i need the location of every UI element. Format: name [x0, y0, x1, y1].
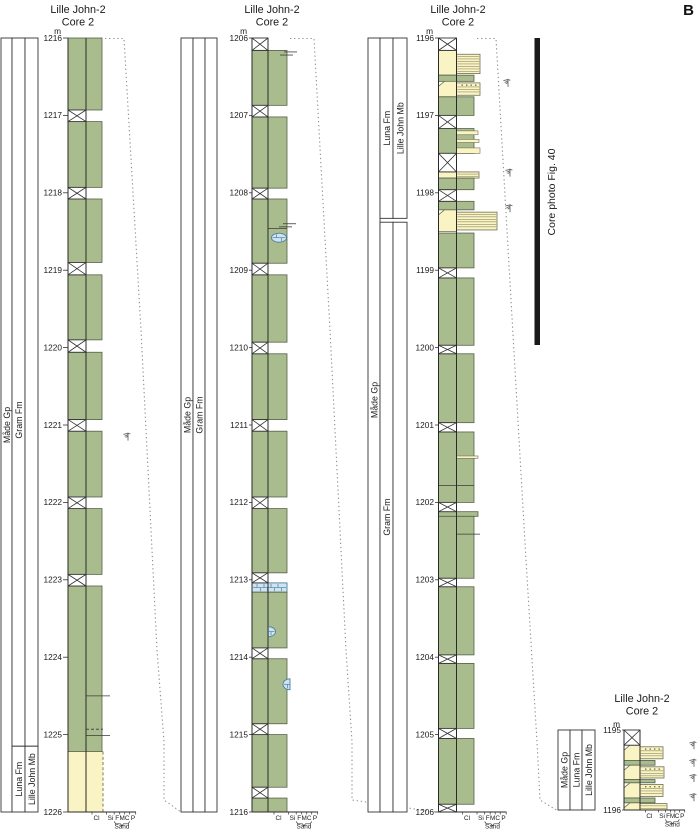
depth-tick-label: 1202	[416, 497, 435, 507]
column-title: Lille John-2	[430, 4, 485, 16]
formation-label: Luna Fm	[382, 111, 392, 146]
core-photo-label: Core photo Fig. 40	[546, 148, 558, 235]
mudstone-unit	[68, 431, 102, 497]
sand-dot	[654, 768, 655, 769]
grainsize-label: Si	[108, 815, 114, 822]
laminated-sand-block	[457, 83, 481, 95]
trace-fossil-icon	[689, 774, 696, 782]
mudstone-unit	[252, 659, 287, 724]
grainsize-label: C	[125, 815, 130, 822]
trace-fossil-icon	[689, 793, 696, 801]
sand-stringer	[457, 148, 481, 153]
depth-tick-label: 1203	[416, 575, 435, 585]
sand-left-block	[439, 172, 457, 178]
depth-tick-label: 1209	[230, 265, 249, 275]
depth-tick-label: 1217	[44, 110, 63, 120]
mudstone-unit	[68, 122, 102, 188]
mudstone-unit	[68, 352, 102, 419]
mudstone-unit	[252, 735, 287, 788]
sand-left-block	[624, 765, 640, 779]
sand-left-block	[439, 81, 457, 96]
sand-dot	[645, 786, 646, 787]
depth-tick-label: 1195	[603, 725, 621, 735]
formation-box	[205, 38, 217, 812]
formation-label: Lille John Mb	[396, 102, 406, 154]
sand-bracket-label: Sand	[296, 824, 311, 831]
depth-tick-label: 1225	[44, 729, 63, 739]
trace-fossil-icon	[123, 433, 130, 441]
formation-label: Luna Fm	[14, 762, 24, 797]
sand-left-block	[624, 783, 640, 798]
sand-dot	[645, 768, 646, 769]
depth-tick-label: 1208	[230, 188, 249, 198]
sand-left-block	[624, 803, 640, 810]
mudstone-unit	[252, 50, 287, 105]
depth-tick-label: 1212	[230, 497, 249, 507]
depth-tick-label: 1205	[416, 729, 435, 739]
grainsize-label: C	[675, 813, 680, 820]
trace-fossil-icon	[505, 204, 512, 212]
grainsize-label: Si	[290, 815, 296, 822]
column-title: Core 2	[62, 17, 94, 29]
grainsize-label: C	[495, 815, 500, 822]
formation-box	[12, 38, 25, 746]
depth-tick-label: 1226	[44, 807, 63, 817]
trace-fossil-icon	[689, 759, 696, 767]
formation-label: Måde Gp	[183, 397, 193, 433]
grainsize-label: Cl	[93, 815, 99, 822]
sand-bracket-label: Sand	[485, 824, 500, 831]
grainsize-label: C	[307, 815, 312, 822]
grainsize-label: Cl	[464, 815, 470, 822]
depth-tick-label: 1216	[44, 33, 63, 43]
laminated-sand-block	[640, 804, 667, 810]
depth-tick-label: 1206	[230, 33, 249, 43]
mudstone-unit	[252, 592, 287, 648]
depth-tick-label: 1211	[230, 420, 248, 430]
trace-fossil-icon	[689, 741, 696, 749]
column-title: Core 2	[442, 17, 474, 29]
formation-label: Måde Gp	[560, 752, 570, 788]
formation-label: Måde Gp	[370, 382, 380, 418]
sand-dot	[462, 84, 463, 85]
laminated-sand-block	[457, 212, 498, 230]
sand-bracket-label: Sand	[665, 822, 680, 829]
mudstone-unit	[252, 117, 287, 188]
log-column-core2-1216-1226: Måde GpGram FmLuna FmLille John MbLille …	[1, 4, 136, 831]
mudstone-unit	[252, 354, 287, 420]
depth-tick-label: 1222	[44, 497, 63, 507]
column-title: Lille John-2	[614, 693, 669, 705]
sand-left-block	[439, 50, 457, 75]
grainsize-label: Cl	[275, 815, 281, 822]
depth-tick-label: 1215	[230, 729, 249, 739]
sand-dot	[659, 768, 660, 769]
depth-tick-label: 1216	[230, 807, 249, 817]
sand-dot	[645, 748, 646, 749]
column-title: Lille John-2	[244, 4, 299, 16]
grainsize-label: P	[501, 815, 505, 822]
trace-fossil-icon	[503, 79, 510, 87]
sand-bracket-label: Sand	[114, 824, 129, 831]
mudstone-unit	[252, 509, 287, 573]
grainsize-label: Cl	[646, 813, 652, 820]
mudstone-unit	[68, 586, 102, 752]
depth-tick-label: 1218	[44, 188, 63, 198]
mudstone-unit	[439, 512, 479, 517]
depth-tick-label: 1196	[416, 33, 434, 43]
sand-dot	[466, 84, 467, 85]
core-log-diagram: Core photo Fig. 40Måde GpGram FmLuna FmL…	[0, 0, 699, 832]
depth-tick-label: 1213	[230, 575, 249, 585]
formation-label: Gram Fm	[195, 396, 205, 433]
formation-label: Måde Gp	[2, 407, 12, 443]
sand-stringer	[457, 456, 479, 458]
depth-tick-label: 1201	[416, 420, 435, 430]
formation-label: Lille John Mb	[584, 744, 594, 796]
depth-tick-label: 1200	[416, 342, 435, 352]
log-column-core2-1195-1196: Måde GpLuna FmLille John MbLille John-2C…	[558, 693, 696, 829]
mudstone-unit	[252, 798, 287, 812]
formation-label: Gram Fm	[382, 499, 392, 536]
grainsize-label: P	[131, 815, 135, 822]
mudstone-unit	[68, 509, 102, 575]
trace-fossil-icon	[505, 169, 512, 177]
depth-tick-label: 1214	[230, 652, 249, 662]
depth-tick-label: 1207	[230, 110, 249, 120]
depth-tick-label: 1220	[44, 342, 63, 352]
column-title: Core 2	[256, 17, 288, 29]
depth-tick-label: 1196	[603, 805, 621, 815]
depth-tick-label: 1221	[44, 420, 63, 430]
depth-tick-label: 1219	[44, 265, 63, 275]
grainsize-label: Si	[659, 813, 665, 820]
sand-left-block	[439, 210, 457, 232]
mudstone-unit	[252, 275, 287, 342]
depth-tick-label: 1197	[416, 110, 434, 120]
depth-tick-label: 1204	[416, 652, 435, 662]
figure-panel-label: B	[683, 2, 694, 19]
sand-stringer	[457, 139, 480, 142]
formation-label: Luna Fm	[572, 753, 582, 788]
correlation-dotted-line	[105, 39, 181, 813]
sand-dot	[471, 84, 472, 85]
core-photo-bar	[535, 38, 541, 345]
grainsize-label: P	[313, 815, 317, 822]
laminated-sand-block	[640, 767, 664, 778]
mudstone-unit	[68, 275, 102, 340]
mudstone-unit	[252, 431, 287, 497]
mudstone-unit	[68, 38, 102, 110]
sand-dot	[659, 786, 660, 787]
sand-dot	[650, 748, 651, 749]
sand-dot	[650, 768, 651, 769]
formation-box	[393, 222, 407, 812]
depth-tick-label: 1199	[416, 265, 434, 275]
depth-tick-label: 1206	[416, 807, 435, 817]
log-column-core2-1196-1206: Måde GpLuna FmGram FmLille John MbLille …	[368, 4, 512, 831]
sand-dot	[654, 786, 655, 787]
formation-box	[25, 38, 38, 746]
depth-tick-label: 1198	[416, 188, 434, 198]
formation-label: Lille John Mb	[27, 753, 37, 805]
column-title: Core 2	[626, 706, 658, 718]
mudstone-unit	[252, 199, 287, 263]
log-column-core2-1206-1216: Måde GpGram FmLille John-2Core 2m1206120…	[181, 4, 318, 831]
sand-dot	[659, 748, 660, 749]
sand-dot	[475, 84, 476, 85]
grainsize-label: P	[680, 813, 684, 820]
depth-tick-label: 1223	[44, 575, 63, 585]
formation-box	[368, 38, 380, 812]
sand-stringer	[457, 131, 479, 135]
core-log-figure: Core photo Fig. 40Måde GpGram FmLuna FmL…	[0, 0, 699, 832]
depth-tick-label: 1224	[44, 652, 63, 662]
column-title: Lille John-2	[50, 4, 105, 16]
correlation-dotted-line	[290, 39, 436, 813]
mudstone-unit	[68, 199, 102, 262]
sand-left-block	[624, 745, 640, 760]
formation-label: Gram Fm	[14, 401, 24, 438]
depth-tick-label: 1210	[230, 342, 249, 352]
grainsize-label: Si	[478, 815, 484, 822]
laminated-sand-block	[457, 172, 480, 178]
sand-dot	[654, 748, 655, 749]
sand-dot	[650, 786, 651, 787]
